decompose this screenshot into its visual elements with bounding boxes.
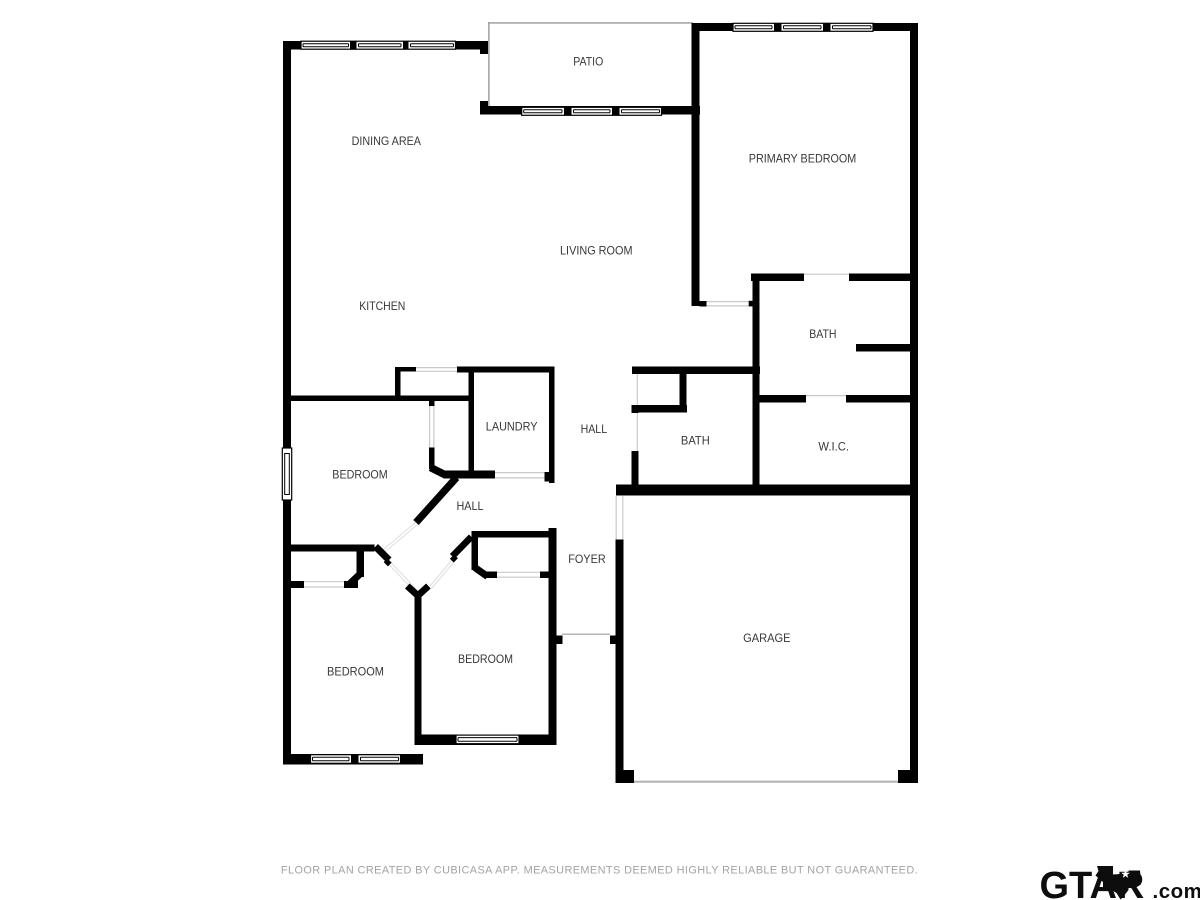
svg-text:HALL: HALL	[581, 422, 608, 436]
svg-text:FOYER: FOYER	[568, 552, 606, 566]
svg-text:BATH: BATH	[681, 433, 710, 447]
svg-text:PATIO: PATIO	[573, 54, 603, 68]
svg-text:KITCHEN: KITCHEN	[359, 299, 405, 313]
svg-text:W.I.C.: W.I.C.	[818, 439, 849, 453]
svg-text:GARAGE: GARAGE	[743, 631, 791, 645]
svg-text:HALL: HALL	[457, 499, 484, 513]
svg-text:BEDROOM: BEDROOM	[332, 467, 387, 481]
svg-text:BEDROOM: BEDROOM	[458, 652, 513, 666]
svg-text:LIVING ROOM: LIVING ROOM	[560, 243, 633, 257]
svg-text:FLOOR PLAN CREATED BY CUBICASA: FLOOR PLAN CREATED BY CUBICASA APP. MEAS…	[281, 865, 918, 877]
svg-text:BEDROOM: BEDROOM	[327, 665, 384, 679]
svg-text:BATH: BATH	[809, 327, 836, 341]
svg-text:LAUNDRY: LAUNDRY	[486, 420, 538, 434]
svg-text:PRIMARY BEDROOM: PRIMARY BEDROOM	[749, 152, 857, 166]
svg-text:DINING AREA: DINING AREA	[352, 134, 422, 148]
svg-text:.com: .com	[1153, 880, 1200, 900]
